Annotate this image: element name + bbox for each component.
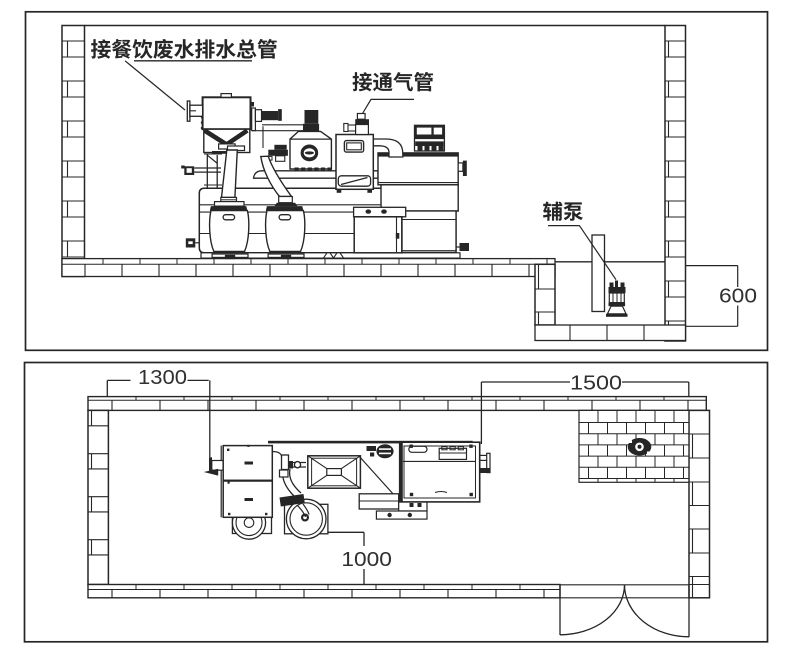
svg-text:1000: 1000 (341, 548, 392, 571)
svg-text:600: 600 (719, 285, 757, 308)
svg-text:1300: 1300 (138, 366, 187, 389)
svg-text:1500: 1500 (570, 372, 622, 395)
